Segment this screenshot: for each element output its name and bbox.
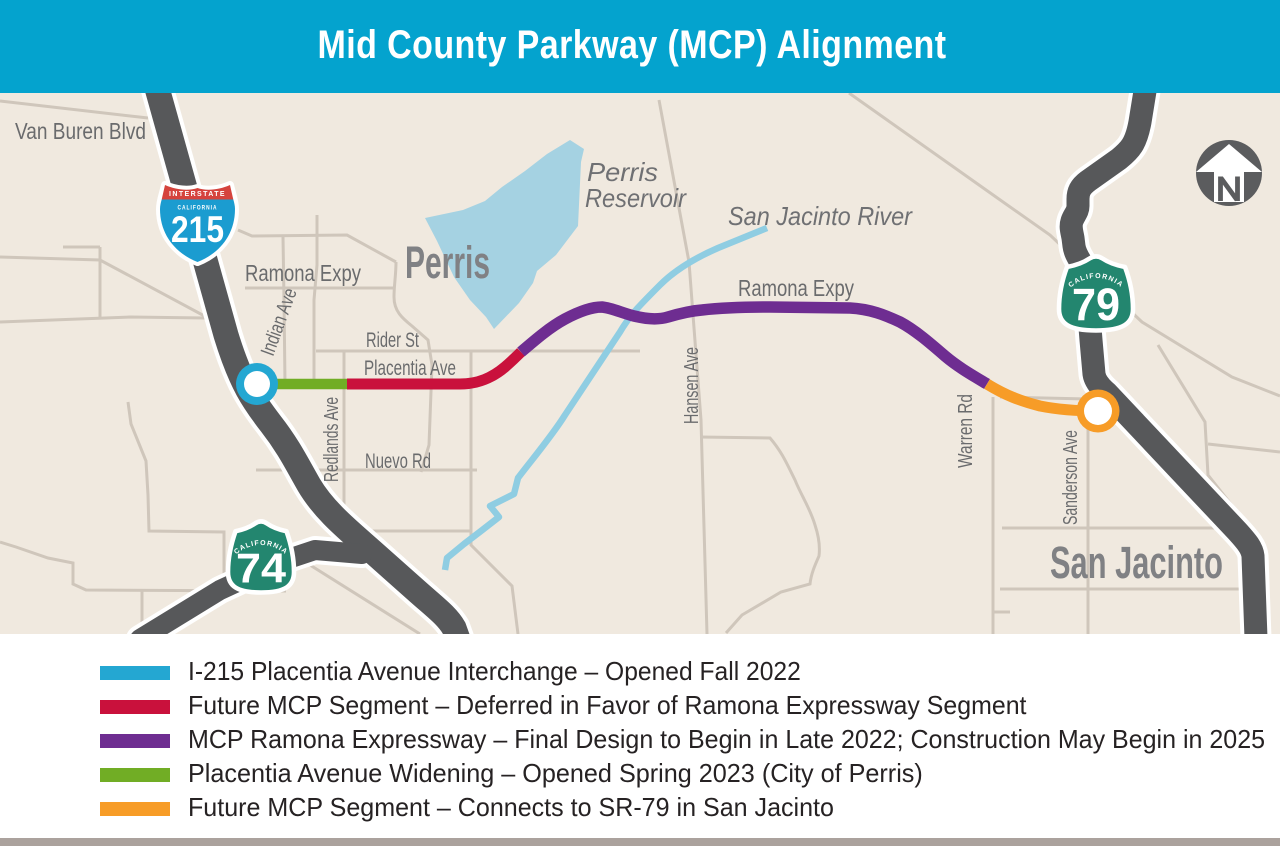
svg-text:Perris: Perris (405, 237, 490, 288)
svg-text:Ramona Expy: Ramona Expy (738, 275, 854, 301)
svg-text:Redlands Ave: Redlands Ave (321, 397, 343, 482)
svg-text:San Jacinto: San Jacinto (1050, 537, 1223, 588)
svg-text:Sanderson Ave: Sanderson Ave (1060, 430, 1082, 525)
svg-text:Warren Rd: Warren Rd (955, 394, 977, 468)
svg-text:Reservoir: Reservoir (585, 183, 687, 213)
svg-text:Ramona Expy: Ramona Expy (245, 260, 361, 286)
svg-text:74: 74 (236, 545, 286, 592)
svg-text:Van Buren Blvd: Van Buren Blvd (15, 118, 146, 144)
svg-text:San Jacinto River: San Jacinto River (728, 201, 913, 231)
svg-text:Rider St: Rider St (366, 329, 419, 352)
svg-text:Placentia Ave: Placentia Ave (364, 357, 456, 380)
svg-text:Nuevo Rd: Nuevo Rd (365, 450, 431, 473)
svg-text:79: 79 (1072, 279, 1120, 330)
svg-text:INTERSTATE: INTERSTATE (169, 189, 226, 198)
svg-text:Hansen Ave: Hansen Ave (681, 347, 703, 424)
svg-text:215: 215 (171, 209, 224, 250)
